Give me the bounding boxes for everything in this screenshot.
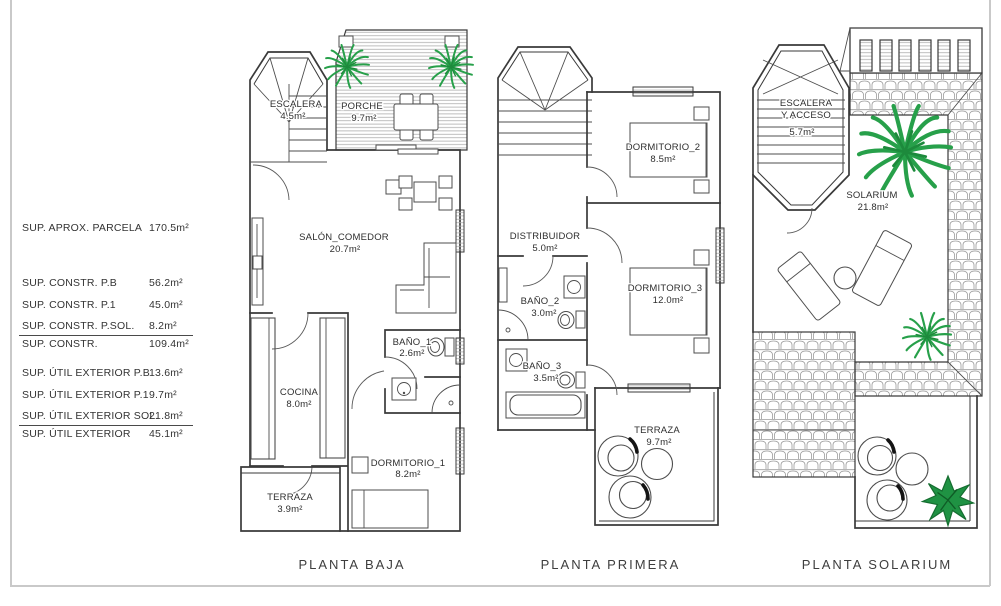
- plan-title-primera: PLANTA PRIMERA: [528, 557, 693, 572]
- room-label-escalera-acceso2: Y ACCESO: [781, 110, 831, 121]
- window: [456, 338, 464, 364]
- room-label-solarium: SOLARIUM: [846, 190, 897, 201]
- room-area-bano2: 3.0m²: [531, 308, 556, 319]
- window: [716, 228, 724, 283]
- sun-lounger: [777, 251, 841, 321]
- plan-sheet: SUP. APROX. PARCELA170.5m² SUP. CONSTR. …: [0, 0, 1001, 606]
- radiator: [499, 268, 507, 302]
- room-area-distribuidor: 5.0m²: [532, 243, 557, 254]
- room-label-dormitorio1: DORMITORIO_1: [371, 458, 446, 469]
- room-label-cocina: COCINA: [280, 387, 319, 398]
- room-label-escalera: ESCALERA: [270, 99, 323, 110]
- door-arc: [587, 167, 617, 197]
- staircase: [498, 52, 592, 155]
- bed: [352, 490, 428, 528]
- room-area-cocina: 8.0m²: [286, 399, 311, 410]
- round-chair: [858, 437, 896, 475]
- nightstand: [694, 338, 709, 353]
- round-table: [896, 453, 928, 485]
- plan-title-baja: PLANTA BAJA: [282, 557, 422, 572]
- room-label-bano1: BAÑO_1: [393, 337, 432, 348]
- sofa: [396, 243, 456, 313]
- door-arc: [352, 371, 384, 409]
- window: [456, 210, 464, 252]
- bush-icon: [923, 476, 974, 526]
- shower: [498, 310, 528, 340]
- room-area-dormitorio3: 12.0m²: [653, 295, 684, 306]
- room-label-distribuidor: DISTRIBUIDOR: [510, 231, 581, 242]
- room-area-dormitorio1: 8.2m²: [395, 469, 420, 480]
- door-arc: [587, 228, 622, 263]
- round-chair: [598, 436, 638, 476]
- room-area-escalera: 4.5m²: [280, 111, 305, 122]
- window: [633, 87, 693, 96]
- nightstand: [694, 250, 709, 265]
- door-arc: [272, 313, 308, 349]
- palm-icon: [859, 106, 951, 196]
- sun-lounger: [851, 230, 912, 307]
- shower: [432, 385, 460, 413]
- round-table: [642, 449, 673, 480]
- toilet: [558, 372, 586, 388]
- nightstand: [694, 180, 709, 193]
- toilet: [558, 311, 585, 329]
- room-label-escalera-acceso: ESCALERA: [780, 98, 833, 109]
- bathtub: [506, 392, 585, 418]
- room-label-bano2: BAÑO_2: [521, 296, 560, 307]
- tiled-roof-block: [753, 332, 855, 477]
- room-label-porche: PORCHE: [341, 101, 383, 112]
- nightstand: [352, 457, 368, 473]
- room-label-bano3: BAÑO_3: [523, 361, 562, 372]
- room-area-terraza-pb: 3.9m²: [277, 504, 302, 515]
- room-label-terraza-p1: TERRAZA: [634, 425, 680, 436]
- sink: [392, 378, 416, 400]
- floor-plan-planta-solarium: ESCALERA Y ACCESO 5.7m² SOLARIUM 21.8m²: [753, 28, 982, 528]
- door-arc: [787, 208, 812, 233]
- floor-plans-drawing: ESCALERA 4.5m² PORCHE 9.7m² SALÓN_COMEDO…: [0, 0, 1001, 606]
- room-area-porche: 9.7m²: [351, 113, 376, 124]
- staircase: [250, 58, 327, 162]
- room-area-terraza-p1: 9.7m²: [646, 437, 671, 448]
- round-table: [834, 267, 856, 289]
- palm-icon: [903, 313, 951, 360]
- door-arc: [253, 165, 289, 200]
- tiled-roof-band: [850, 73, 982, 396]
- round-chair: [609, 476, 651, 518]
- pergola: [840, 28, 982, 73]
- room-label-dormitorio2: DORMITORIO_2: [626, 142, 701, 153]
- door-arc: [283, 466, 312, 495]
- room-area-salon: 20.7m²: [330, 244, 361, 255]
- tv-unit: [252, 218, 263, 305]
- door-arc: [523, 256, 553, 286]
- toilet: [428, 338, 454, 356]
- nightstand: [694, 107, 709, 120]
- round-chair: [867, 480, 907, 520]
- room-area-dormitorio2: 8.5m²: [650, 154, 675, 165]
- floor-plan-planta-baja: ESCALERA 4.5m² PORCHE 9.7m² SALÓN_COMEDO…: [241, 30, 473, 531]
- dining-set: [386, 176, 452, 210]
- room-area-escalera-acceso: 5.7m²: [789, 127, 814, 138]
- room-area-solarium: 21.8m²: [858, 202, 889, 213]
- window: [456, 428, 464, 474]
- room-label-dormitorio3: DORMITORIO_3: [628, 283, 703, 294]
- room-area-bano1: 2.6m²: [399, 348, 424, 359]
- room-label-salon: SALÓN_COMEDOR: [299, 232, 389, 243]
- room-label-terraza-pb: TERRAZA: [267, 492, 313, 503]
- sink: [564, 276, 585, 298]
- room-area-bano3: 3.5m²: [533, 373, 558, 384]
- terraza-outline: [595, 388, 718, 525]
- floor-plan-planta-primera: DISTRIBUIDOR 5.0m² DORMITORIO_2 8.5m² BA…: [498, 47, 724, 525]
- door-arc: [587, 365, 617, 395]
- plan-title-solarium: PLANTA SOLARIUM: [792, 557, 962, 572]
